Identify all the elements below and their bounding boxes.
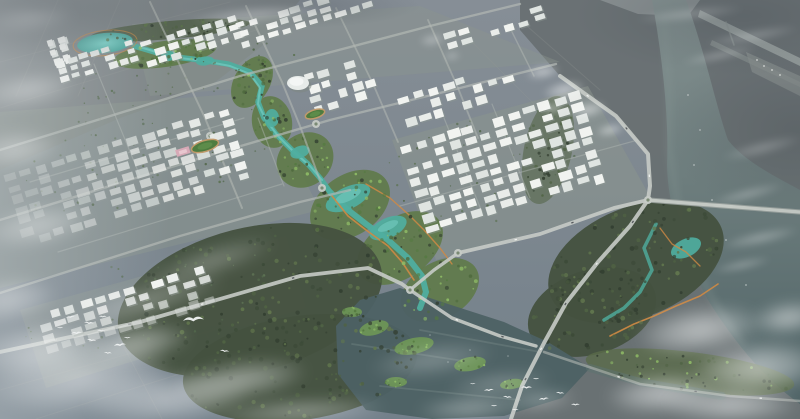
dome-cap bbox=[290, 77, 304, 86]
screenshot-root bbox=[0, 0, 800, 419]
masterplan-aerial-rendering bbox=[0, 0, 800, 419]
